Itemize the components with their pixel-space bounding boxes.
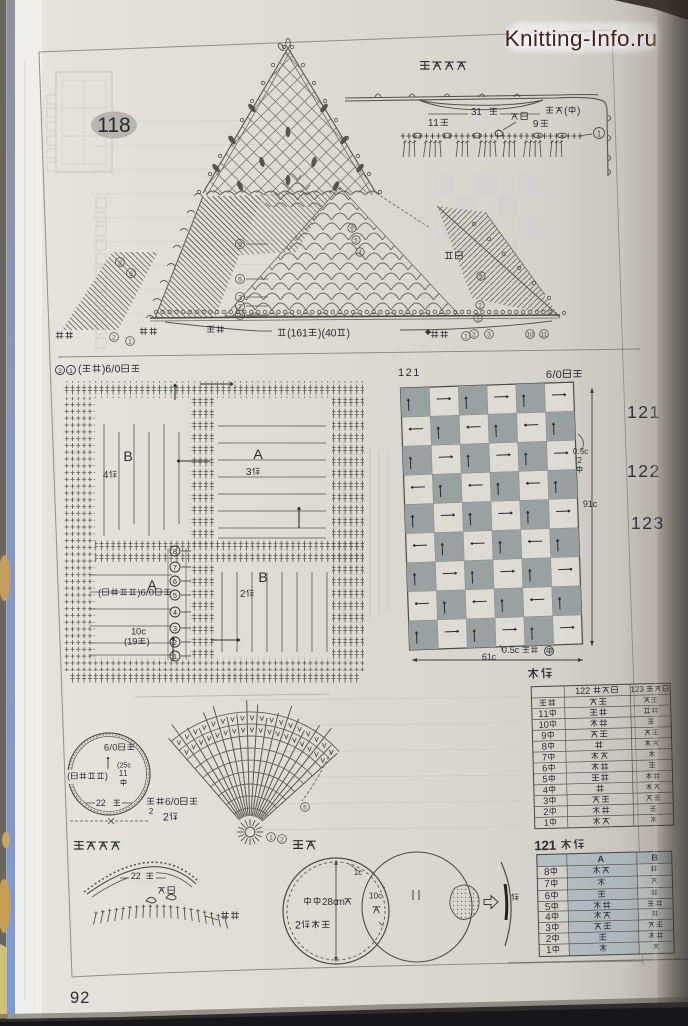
svg-text:1: 1	[476, 107, 482, 118]
svg-text:2: 2	[280, 837, 284, 844]
svg-text:): )	[105, 771, 108, 781]
svg-text:1: 1	[549, 838, 557, 853]
svg-text:1: 1	[128, 339, 132, 346]
svg-text:B: B	[123, 448, 132, 464]
svg-text:1: 1	[69, 368, 73, 375]
svg-text:121: 121	[398, 367, 421, 379]
svg-text:0: 0	[112, 743, 117, 754]
svg-text:2: 2	[240, 589, 246, 600]
svg-text:6: 6	[104, 743, 109, 754]
svg-text:4: 4	[545, 912, 551, 923]
svg-text:c: c	[358, 868, 362, 877]
svg-text:2: 2	[478, 303, 482, 310]
svg-text:): )	[147, 637, 150, 648]
svg-text:B: B	[258, 569, 267, 585]
svg-text:6: 6	[542, 762, 548, 773]
svg-text:92: 92	[70, 989, 90, 1007]
svg-text:0: 0	[174, 797, 180, 808]
svg-text:2: 2	[149, 807, 153, 816]
svg-text:5: 5	[238, 277, 242, 284]
svg-text:0: 0	[115, 363, 121, 375]
svg-text:9: 9	[238, 242, 242, 249]
svg-text:2: 2	[238, 304, 242, 311]
svg-text:2: 2	[163, 811, 169, 823]
svg-text:5: 5	[303, 805, 307, 812]
svg-text:6: 6	[173, 577, 177, 586]
svg-text:5: 5	[479, 274, 483, 281]
svg-text:4: 4	[173, 608, 177, 617]
svg-text:0: 0	[543, 719, 549, 730]
svg-text:0: 0	[149, 588, 154, 599]
svg-text:2: 2	[136, 871, 141, 881]
svg-text:3: 3	[238, 295, 242, 302]
svg-text:2: 2	[546, 934, 552, 945]
svg-text:1: 1	[543, 817, 549, 828]
svg-text:7: 7	[542, 751, 548, 762]
svg-text:3: 3	[545, 923, 551, 934]
svg-text:8: 8	[118, 260, 122, 267]
svg-text:c: c	[127, 761, 131, 770]
svg-text:4: 4	[543, 784, 549, 795]
svg-text:118: 118	[97, 114, 130, 137]
svg-text:1: 1	[123, 769, 127, 778]
svg-text:3: 3	[487, 332, 491, 339]
svg-text:7: 7	[544, 879, 550, 890]
svg-text:5: 5	[354, 238, 358, 245]
svg-text:1: 1	[433, 118, 439, 129]
svg-text:m: m	[336, 897, 344, 908]
svg-text:11: 11	[541, 332, 548, 339]
svg-text:6: 6	[129, 271, 133, 278]
svg-text:2: 2	[543, 806, 549, 817]
svg-text:3: 3	[246, 467, 252, 478]
svg-text:5: 5	[542, 773, 548, 784]
svg-text:1: 1	[302, 327, 308, 339]
svg-text:0: 0	[331, 327, 337, 339]
svg-text:c: c	[515, 645, 520, 655]
svg-text:2: 2	[112, 335, 116, 342]
svg-text:8: 8	[173, 547, 177, 556]
svg-text:10: 10	[526, 332, 534, 339]
svg-text:1: 1	[546, 945, 552, 956]
svg-text:5: 5	[173, 591, 177, 600]
svg-text:7: 7	[173, 563, 177, 572]
svg-text:6: 6	[105, 363, 111, 375]
svg-text:2: 2	[472, 332, 476, 339]
svg-text:6: 6	[544, 891, 550, 902]
svg-text:1: 1	[464, 334, 468, 341]
svg-text:9: 9	[132, 637, 137, 648]
svg-text:(: (	[67, 771, 70, 781]
svg-text:6: 6	[350, 226, 354, 233]
svg-text:6: 6	[546, 369, 552, 381]
svg-text:1: 1	[476, 316, 480, 323]
svg-text:8: 8	[541, 740, 547, 751]
svg-text:3: 3	[543, 795, 549, 806]
svg-text:c: c	[492, 652, 497, 662]
svg-text:1: 1	[238, 313, 242, 320]
svg-text:(: (	[78, 363, 82, 375]
svg-text:): )	[347, 327, 351, 339]
svg-text:8: 8	[544, 867, 550, 878]
svg-text:1: 1	[543, 708, 549, 719]
svg-text:c: c	[378, 891, 382, 901]
svg-text:2: 2	[101, 798, 106, 808]
svg-text:3: 3	[173, 624, 177, 633]
svg-text:2: 2	[58, 368, 62, 375]
svg-text:A: A	[253, 446, 263, 462]
svg-text:9: 9	[533, 119, 539, 130]
svg-text:4: 4	[358, 250, 362, 257]
svg-text:2: 2	[295, 919, 301, 931]
svg-text:9: 9	[541, 730, 547, 741]
svg-text:1: 1	[269, 835, 273, 842]
svg-text:4: 4	[103, 470, 109, 481]
